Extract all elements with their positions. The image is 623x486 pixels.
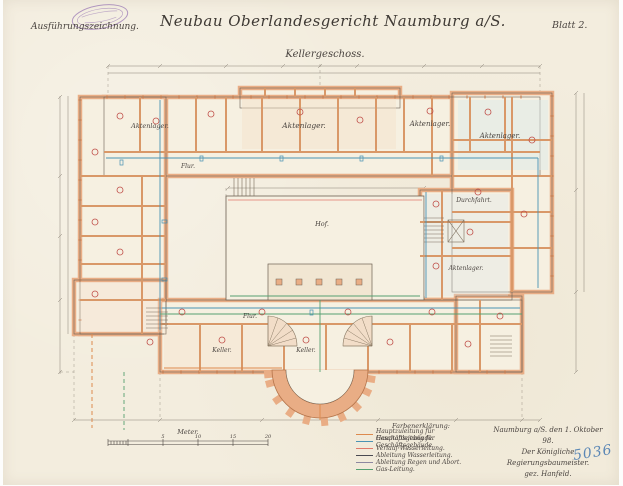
legend-label: Verlauf Wasserleitung.	[376, 445, 445, 452]
room-label-aktenlager: Aktenlager.	[448, 265, 484, 272]
sheet-title: Neubau Oberlandesgericht Naumburg a/S.	[25, 12, 623, 30]
room-label-aktenlager: Aktenlager.	[409, 120, 451, 128]
room-label-hof: Hof.	[314, 220, 329, 228]
legend-swatch	[356, 434, 373, 436]
legend-row: Ableitung Wasserleitung.	[356, 452, 486, 459]
scale-tick: 15	[230, 434, 236, 440]
signature-place-date: Naumburg a/S. den 1. Oktober 98.	[489, 425, 607, 447]
scale-tick: 10	[195, 434, 202, 440]
legend-swatch	[356, 455, 373, 457]
legend-swatch	[356, 441, 373, 443]
room-label-aktenlager: Aktenlager.	[281, 121, 326, 130]
room-label-flur: Flur.	[180, 163, 195, 170]
legend-swatch	[356, 469, 373, 471]
scale-tick: 5	[161, 434, 164, 440]
sheet-number: Blatt 2.	[552, 20, 587, 31]
legend-label: Ableitung Wasserleitung.	[376, 452, 453, 459]
color-legend: Farbenerklärung: Hauptzuleitung für Gesc…	[356, 422, 486, 473]
room-label-aktenlager: Aktenlager.	[130, 122, 169, 130]
room-label-aktenlager: Aktenlager.	[479, 132, 521, 140]
scale-tick: 20	[264, 434, 272, 440]
legend-row: Hauptableitung für Geschäftsgebäude.	[356, 438, 486, 445]
drawing-sheet: Aktenlager. Aktenlager. Aktenlager. Akte…	[3, 0, 619, 485]
legend-row: Ableitung Regen und Abort.	[356, 459, 486, 466]
room-label-keller: Keller.	[211, 347, 231, 354]
legend-swatch	[356, 448, 373, 450]
legend-row: Gas-Leitung.	[356, 466, 486, 473]
legend-swatch	[356, 462, 373, 464]
legend-label: Gas-Leitung.	[376, 466, 415, 473]
floor-label: Kellergeschoss.	[17, 49, 623, 60]
floor-plan-drawing: Aktenlager. Aktenlager. Aktenlager. Akte…	[3, 0, 619, 486]
room-label-durchfahrt: Durchfahrt.	[455, 197, 492, 204]
vestibule	[268, 264, 372, 300]
room-label-flur: Flur.	[242, 313, 257, 320]
signature-name: gez. Hanfeld.	[489, 469, 607, 480]
room-label-keller: Keller.	[295, 347, 315, 354]
legend-label: Ableitung Regen und Abort.	[376, 459, 461, 466]
scale-bar: Meter. 5 10 15 20	[108, 428, 272, 446]
